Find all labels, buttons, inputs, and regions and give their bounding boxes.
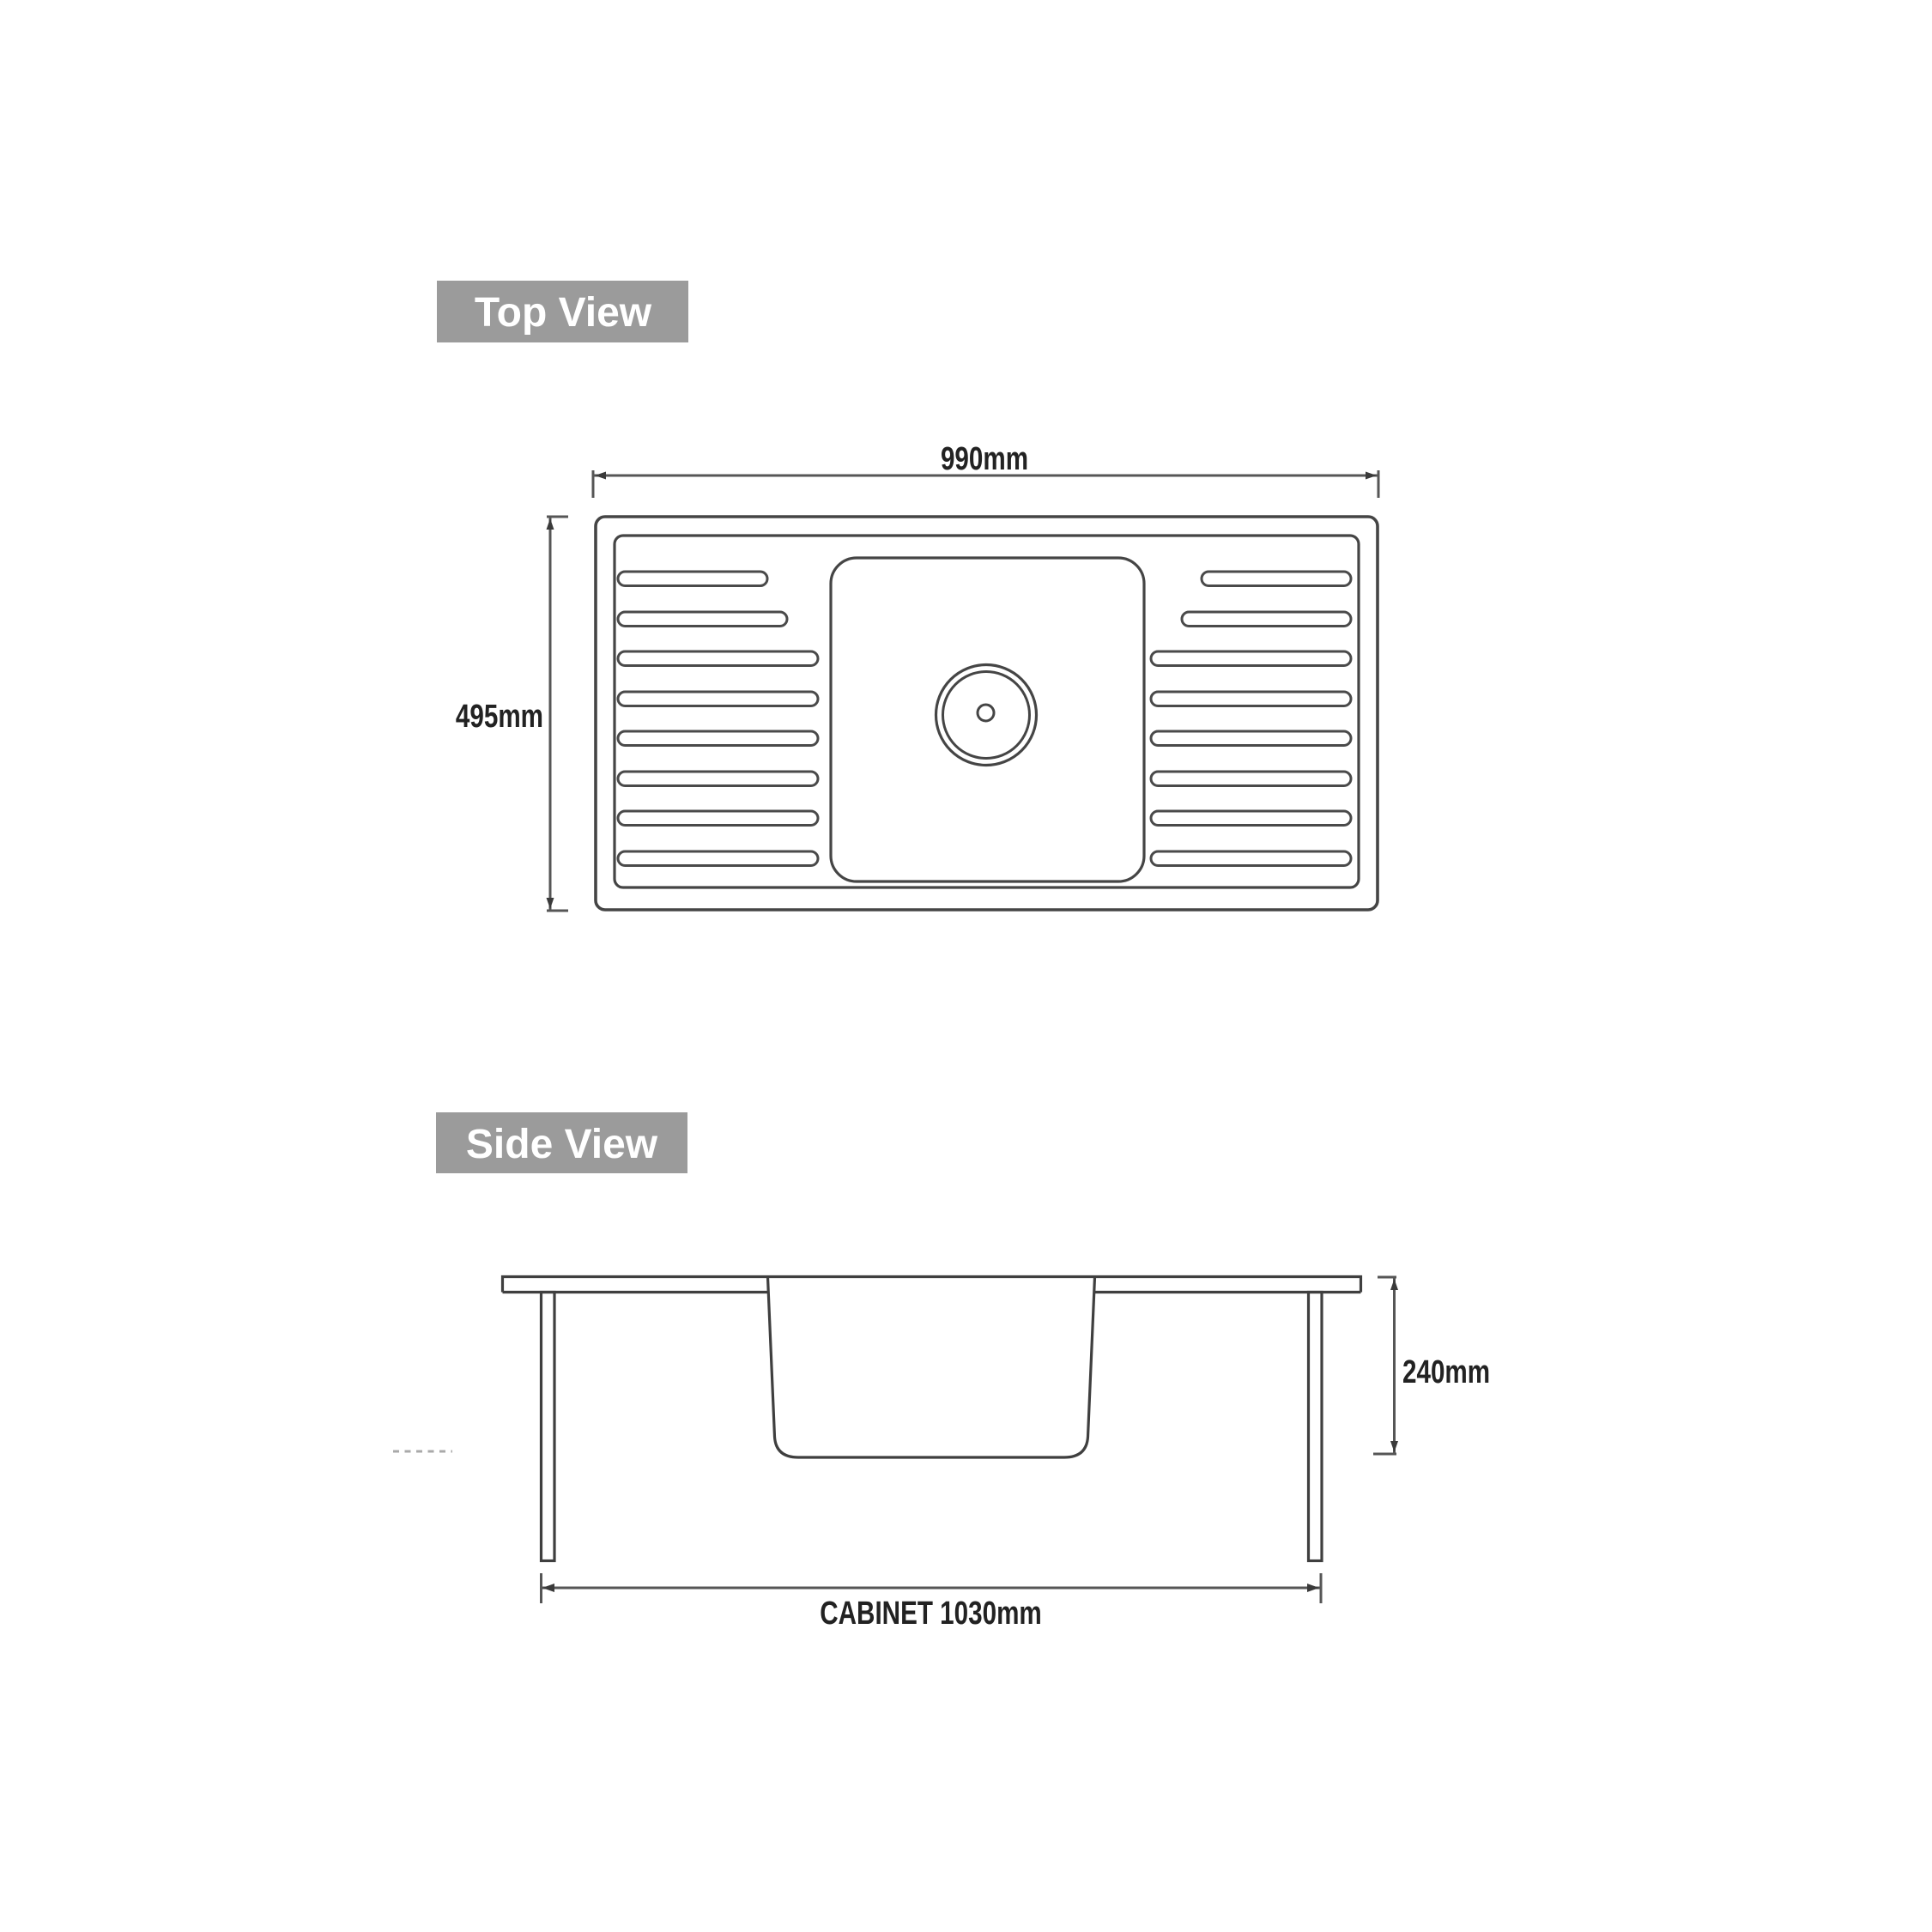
svg-text:CABINET 1030mm: CABINET 1030mm — [820, 1596, 1042, 1632]
svg-text:240mm: 240mm — [1402, 1354, 1490, 1390]
svg-text:990mm: 990mm — [941, 441, 1028, 477]
svg-text:Top View: Top View — [475, 290, 652, 336]
svg-text:Side View: Side View — [466, 1122, 658, 1167]
svg-text:495mm: 495mm — [456, 699, 543, 735]
